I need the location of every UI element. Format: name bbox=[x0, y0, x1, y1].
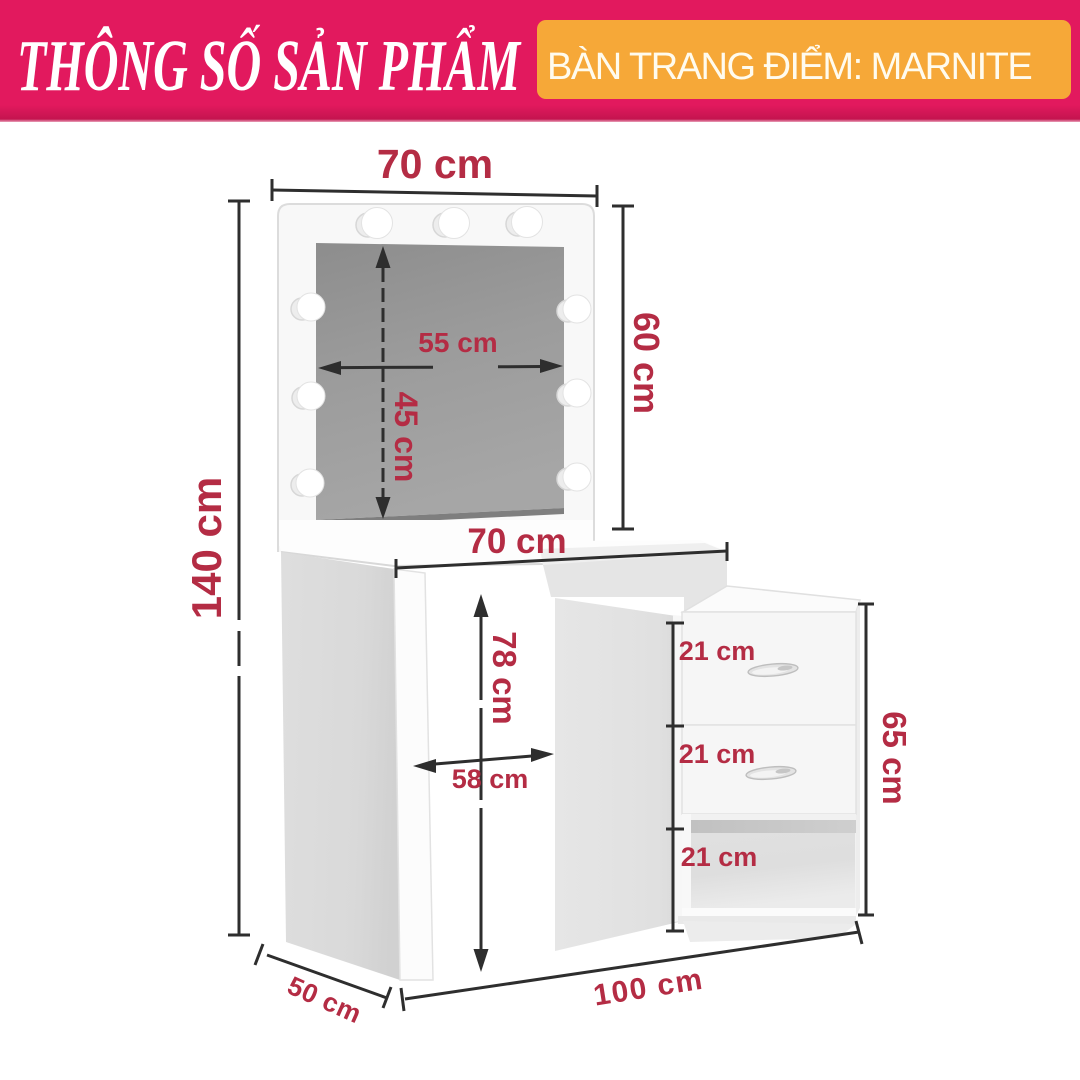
svg-text:78 cm: 78 cm bbox=[486, 631, 523, 725]
svg-text:70 cm: 70 cm bbox=[377, 141, 493, 187]
svg-text:140 cm: 140 cm bbox=[183, 477, 230, 619]
svg-text:21 cm: 21 cm bbox=[679, 739, 756, 769]
svg-text:55 cm: 55 cm bbox=[418, 327, 497, 358]
svg-text:60 cm: 60 cm bbox=[626, 312, 667, 414]
svg-text:45 cm: 45 cm bbox=[388, 392, 424, 483]
svg-text:65 cm: 65 cm bbox=[876, 711, 913, 805]
svg-text:70 cm: 70 cm bbox=[467, 522, 566, 561]
svg-text:50 cm: 50 cm bbox=[283, 970, 366, 1029]
svg-text:21 cm: 21 cm bbox=[681, 842, 758, 872]
svg-text:21 cm: 21 cm bbox=[679, 636, 756, 666]
svg-text:58 cm: 58 cm bbox=[452, 764, 529, 794]
